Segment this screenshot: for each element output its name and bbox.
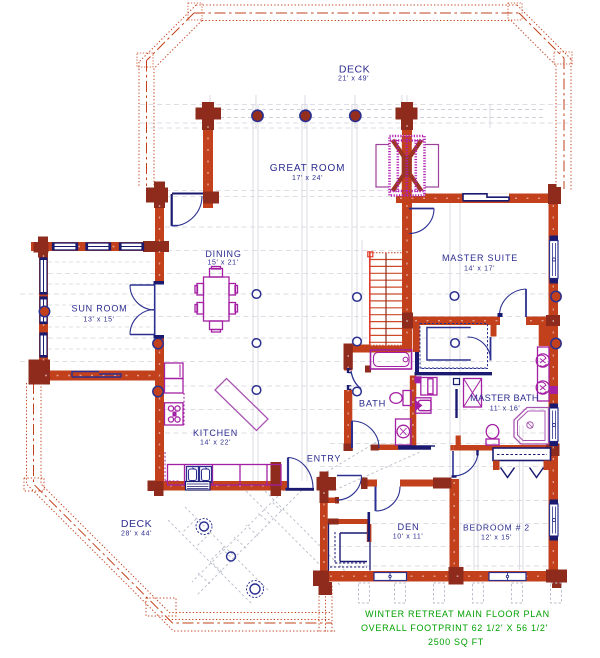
svg-text:DEN: DEN: [397, 522, 419, 532]
svg-text:17' x 24': 17' x 24': [292, 175, 323, 182]
svg-text:DECK: DECK: [339, 64, 370, 76]
svg-text:BEDROOM # 2: BEDROOM # 2: [463, 523, 530, 533]
svg-text:28' x 44': 28' x 44': [121, 531, 152, 538]
svg-text:DECK: DECK: [121, 518, 152, 530]
svg-text:MASTER SUITE: MASTER SUITE: [442, 253, 518, 263]
svg-text:KITCHEN: KITCHEN: [193, 428, 238, 438]
svg-text:BATH: BATH: [359, 399, 386, 409]
svg-text:21' x 49': 21' x 49': [338, 76, 369, 83]
svg-text:12' x 15': 12' x 15': [481, 535, 512, 542]
svg-text:14' x 17': 14' x 17': [464, 266, 495, 273]
svg-text:SUN ROOM: SUN ROOM: [72, 304, 128, 314]
svg-text:10' x 11': 10' x 11': [393, 534, 424, 541]
svg-text:MASTER BATH: MASTER BATH: [470, 393, 539, 403]
svg-text:OVERALL FOOTPRINT 62 1/2' X 56: OVERALL FOOTPRINT 62 1/2' X 56 1/2': [361, 623, 548, 633]
svg-text:DINING: DINING: [205, 249, 241, 259]
svg-text:14' x 22': 14' x 22': [200, 440, 231, 447]
svg-text:2500 SQ FT: 2500 SQ FT: [428, 637, 484, 647]
svg-text:15' x 21': 15' x 21': [207, 260, 238, 267]
svg-text:ENTRY: ENTRY: [307, 454, 341, 464]
svg-text:WINTER RETREAT MAIN FLOOR PLAN: WINTER RETREAT MAIN FLOOR PLAN: [365, 609, 550, 619]
svg-text:11' x 16': 11' x 16': [490, 406, 521, 413]
svg-text:13' x 15': 13' x 15': [83, 317, 114, 324]
svg-text:GREAT ROOM: GREAT ROOM: [270, 163, 345, 174]
